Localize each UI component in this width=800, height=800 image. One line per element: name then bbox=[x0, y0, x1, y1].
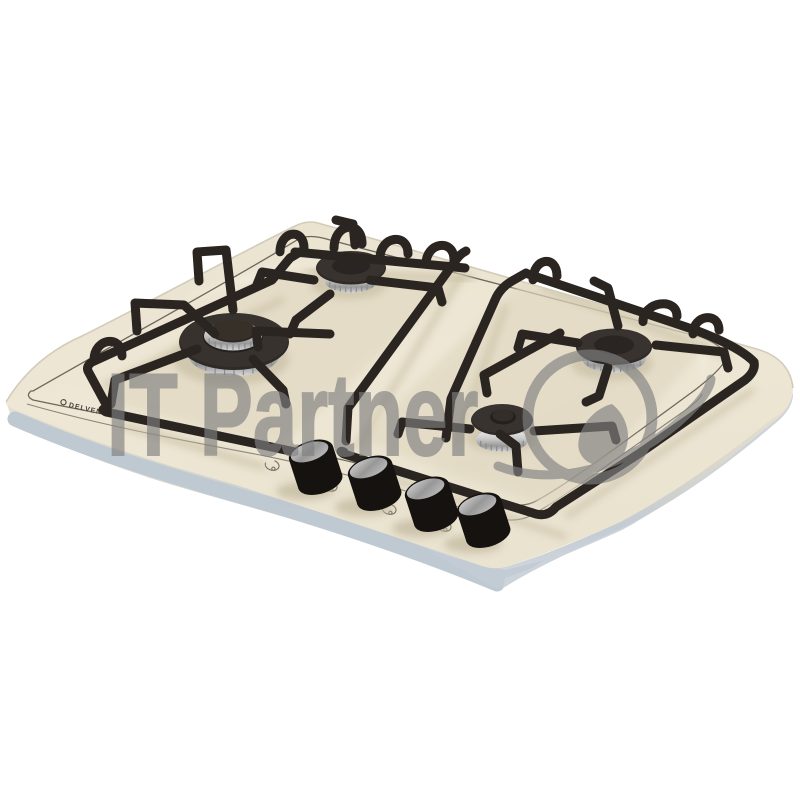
svg-text:IT Partner: IT Partner bbox=[107, 350, 478, 481]
